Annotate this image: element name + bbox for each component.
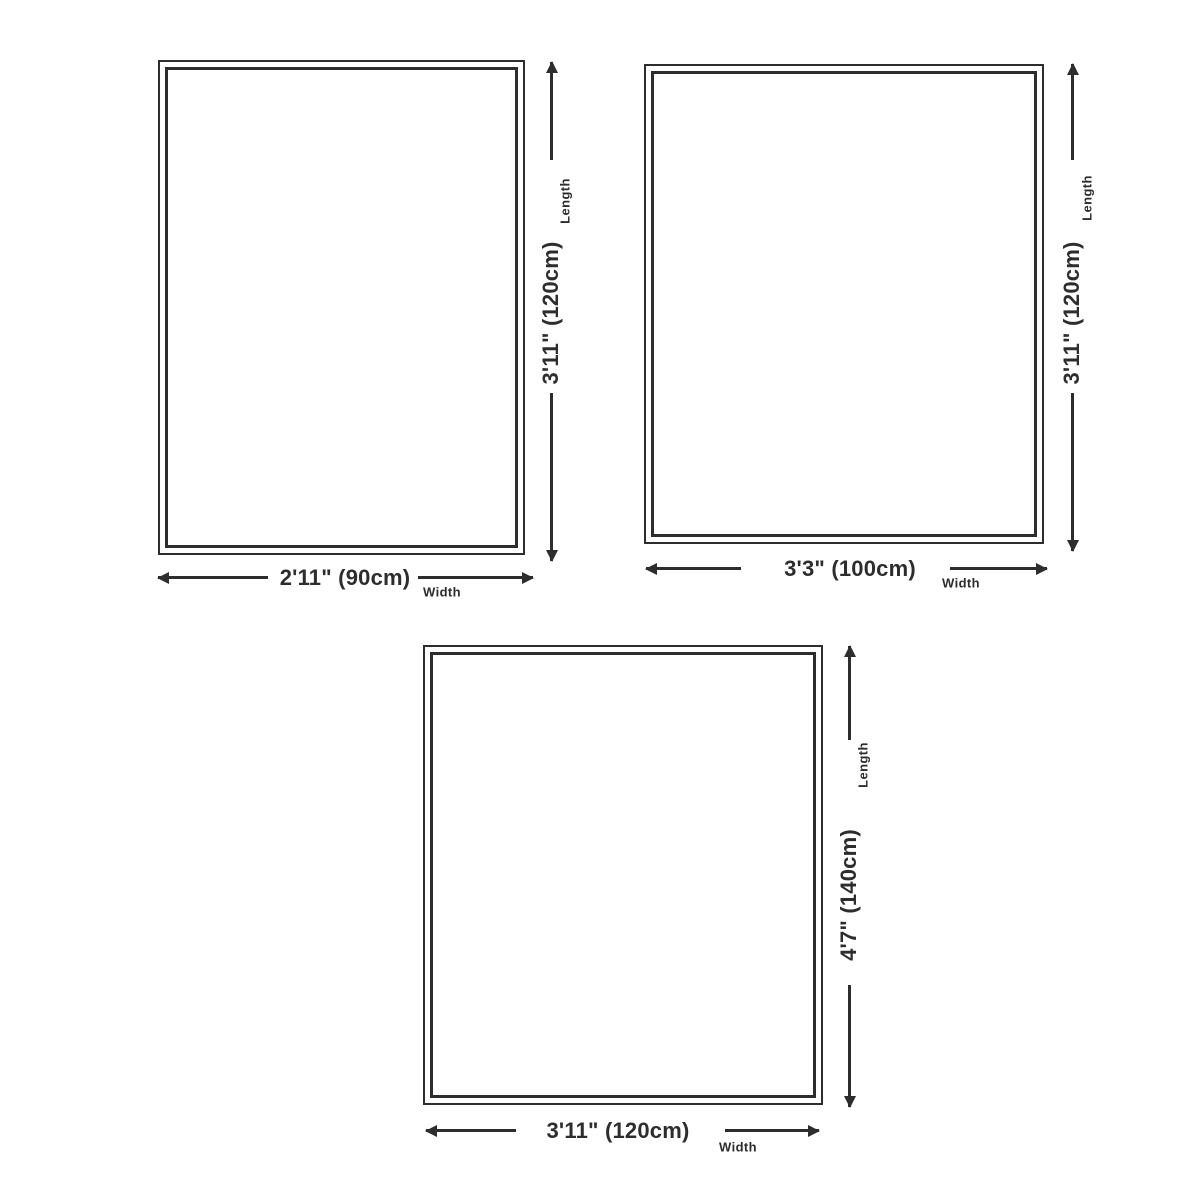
length-value-label: 3'11" (120cm): [538, 241, 564, 384]
width-arrow-left-segment: [646, 567, 741, 570]
length-arrow-lower-segment: [1071, 393, 1074, 551]
rug-size-guide: Length 3'11" (120cm) 2'11" (90cm) Width …: [0, 0, 1200, 1200]
width-caption: Width: [942, 576, 980, 591]
rug-outline-inner: [165, 67, 518, 548]
width-arrow-left-segment: [426, 1129, 516, 1132]
length-arrow-upper-segment: [848, 646, 851, 740]
width-value-label: 3'3" (100cm): [784, 556, 916, 582]
width-caption: Width: [423, 585, 461, 600]
length-arrow-lower-segment: [848, 985, 851, 1107]
width-arrow-right-segment: [725, 1129, 819, 1132]
length-arrow-lower-segment: [550, 393, 553, 561]
width-arrow-right-segment: [950, 567, 1047, 570]
length-value-label: 3'11" (120cm): [1059, 241, 1085, 384]
rug-outline: [158, 60, 525, 555]
length-arrow-upper-segment: [1071, 64, 1074, 160]
length-caption: Length: [1080, 175, 1095, 221]
width-arrow-right-segment: [418, 576, 533, 579]
width-caption: Width: [719, 1140, 757, 1155]
width-arrow-left-segment: [158, 576, 268, 579]
length-value-label: 4'7" (140cm): [836, 829, 862, 961]
size-diagram-90x120: Length 3'11" (120cm) 2'11" (90cm) Width: [0, 0, 1200, 1200]
length-arrow-upper-segment: [550, 62, 553, 160]
length-caption: Length: [558, 178, 573, 224]
width-value-label: 3'11" (120cm): [546, 1118, 689, 1144]
rug-outline-inner: [651, 71, 1037, 537]
rug-outline: [423, 645, 823, 1105]
size-diagram-120x140: Length 4'7" (140cm) 3'11" (120cm) Width: [0, 0, 1200, 1200]
length-caption: Length: [856, 742, 871, 788]
rug-outline-inner: [430, 652, 816, 1098]
size-diagram-100x120: Length 3'11" (120cm) 3'3" (100cm) Width: [0, 0, 1200, 1200]
rug-outline: [644, 64, 1044, 544]
width-value-label: 2'11" (90cm): [280, 565, 411, 591]
